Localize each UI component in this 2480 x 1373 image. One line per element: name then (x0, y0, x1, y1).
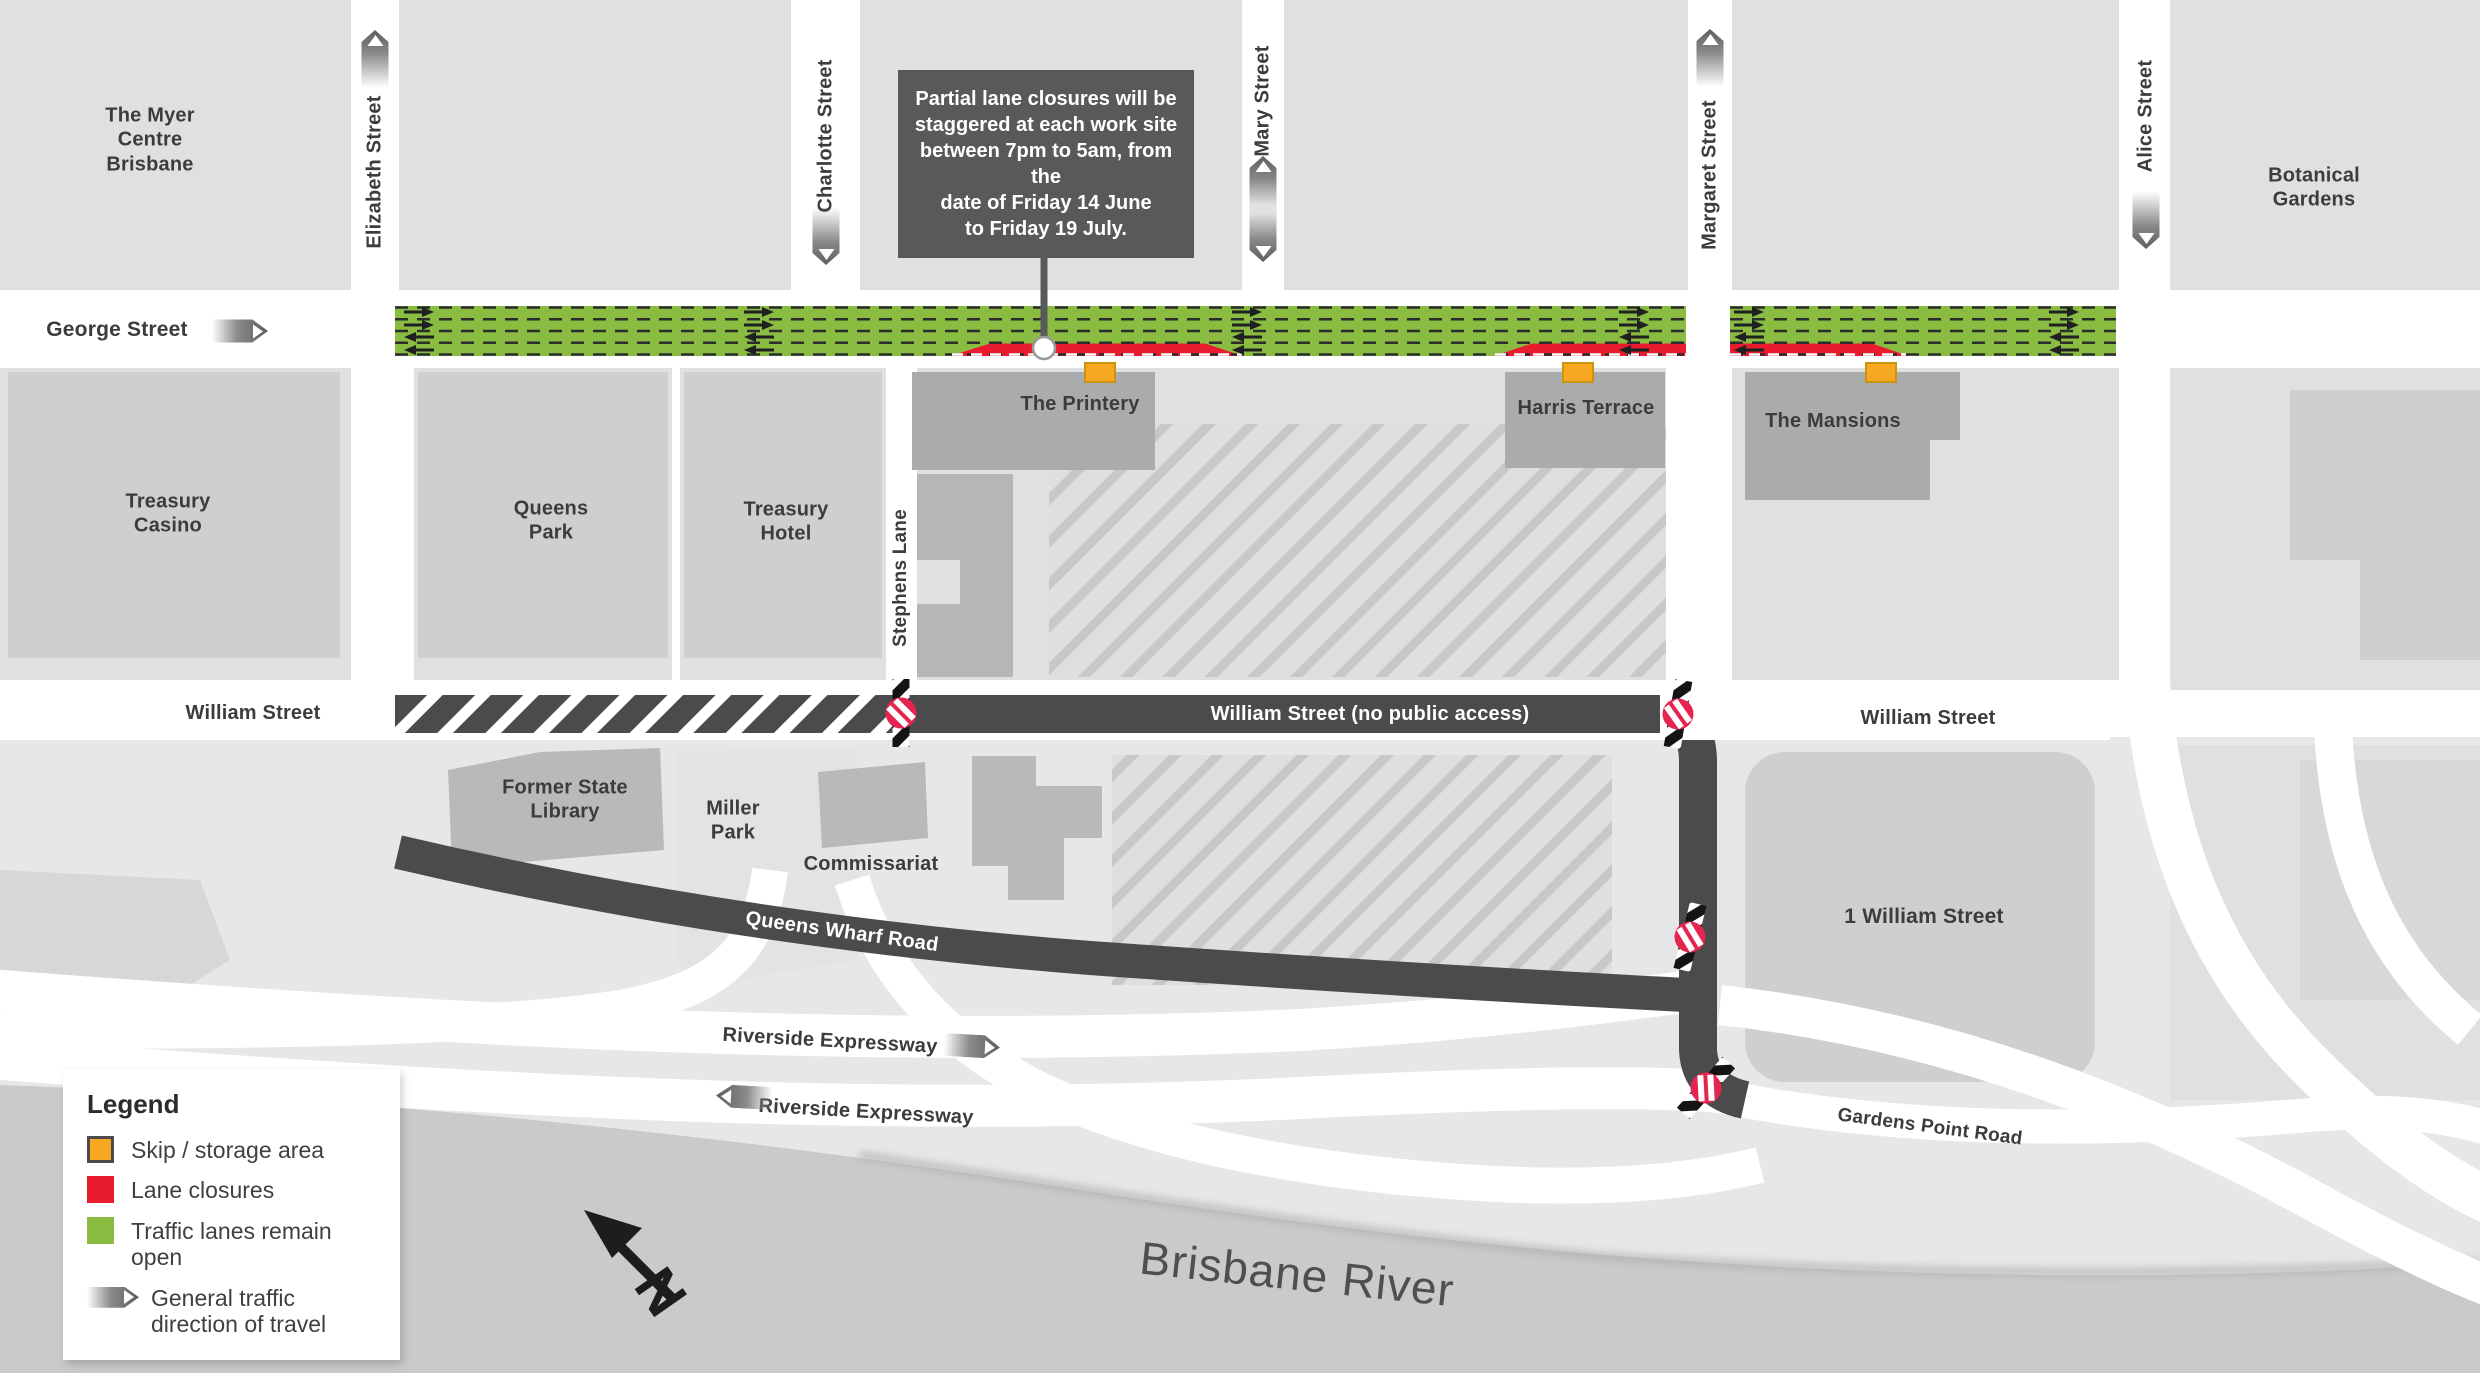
label-treasury-hotel: Treasury Hotel (744, 498, 829, 547)
skip-storage-box (1866, 363, 1896, 382)
legend: Legend Skip / storage area Lane closures… (63, 1069, 400, 1360)
roadworks-map: N The Myer Centre Brisbane Botanical Gar… (0, 0, 2480, 1373)
legend-item-lane-closures: Lane closures (87, 1176, 376, 1203)
printery-building (912, 372, 1155, 470)
label-stephens-lane: Stephens Lane (890, 509, 912, 647)
label-one-william-street: 1 William Street (1844, 904, 2003, 930)
legend-item-label: Skip / storage area (131, 1136, 324, 1163)
label-mary-street: Mary Street (1252, 45, 1275, 156)
label-william-street-east: William Street (1861, 706, 1996, 730)
legend-item-label: General traffic direction of travel (151, 1284, 326, 1338)
label-alice-street: Alice Street (2135, 60, 2158, 172)
direction-arrow-down-icon (1250, 202, 1277, 262)
direction-arrow-down-icon (813, 205, 840, 265)
margaret-street-crossing-gap (1686, 306, 1730, 356)
label-george-street: George Street (46, 317, 187, 343)
william-street-closed-hatch (395, 695, 900, 733)
label-william-street-closed: William Street (no public access) (1211, 702, 1530, 726)
direction-arrow-up-icon (1697, 29, 1724, 89)
label-elizabeth-street: Elizabeth Street (364, 95, 387, 248)
legend-item-label: Lane closures (131, 1176, 274, 1203)
label-myer-centre: The Myer Centre Brisbane (105, 103, 194, 176)
skip-storage-box (1085, 363, 1115, 382)
label-botanical-gardens: Botanical Gardens (2268, 164, 2360, 213)
label-former-state-library: Former State Library (502, 776, 628, 825)
commissariat-building (818, 762, 928, 848)
legend-item-label: Traffic lanes remain open (131, 1217, 376, 1271)
label-harris-terrace: Harris Terrace (1518, 396, 1655, 420)
legend-item-direction: General traffic direction of travel (87, 1284, 376, 1338)
open-lanes-swatch (87, 1217, 114, 1244)
label-william-street-west: William Street (186, 701, 321, 725)
lane-closure-swatch (87, 1176, 114, 1203)
skip-storage-swatch (87, 1136, 114, 1163)
label-mansions: The Mansions (1765, 409, 1901, 433)
label-treasury-casino: Treasury Casino (126, 490, 211, 539)
skip-storage-box (1563, 363, 1593, 382)
legend-item-skip-storage: Skip / storage area (87, 1136, 376, 1163)
legend-title: Legend (87, 1089, 376, 1120)
legend-item-open-lanes: Traffic lanes remain open (87, 1217, 376, 1271)
direction-arrow-icon (87, 1287, 139, 1308)
label-commissariat: Commissariat (804, 852, 939, 876)
direction-arrow-up-icon (362, 30, 389, 90)
label-printery: The Printery (1020, 392, 1139, 416)
label-miller-park: Miller Park (706, 797, 759, 846)
label-queens-park: Queens Park (514, 497, 589, 546)
closure-callout: Partial lane closures will be staggered … (898, 70, 1194, 258)
label-margaret-street: Margaret Street (1699, 100, 1722, 250)
label-charlotte-street: Charlotte Street (815, 59, 838, 212)
george-street-corridor (0, 290, 2480, 368)
direction-arrow-down-icon (2133, 189, 2160, 249)
mansions-building (1745, 372, 1960, 500)
